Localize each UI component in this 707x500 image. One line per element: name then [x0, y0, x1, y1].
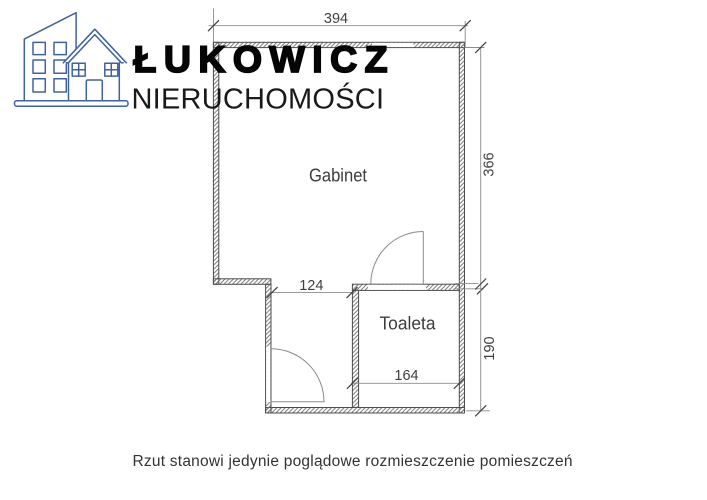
- svg-text:NIERUCHOMOŚCI: NIERUCHOMOŚCI: [132, 82, 385, 116]
- svg-text:124: 124: [299, 278, 323, 294]
- svg-text:190: 190: [482, 336, 498, 360]
- svg-text:Gabinet: Gabinet: [309, 165, 367, 186]
- svg-text:Toaleta: Toaleta: [380, 313, 437, 334]
- svg-text:ŁUKOWICZ: ŁUKOWICZ: [134, 38, 388, 80]
- svg-text:366: 366: [482, 152, 498, 176]
- svg-text:164: 164: [394, 368, 418, 384]
- svg-text:394: 394: [324, 11, 348, 27]
- svg-text:Rzut stanowi jedynie poglądowe: Rzut stanowi jedynie poglądowe rozmieszc…: [133, 453, 573, 470]
